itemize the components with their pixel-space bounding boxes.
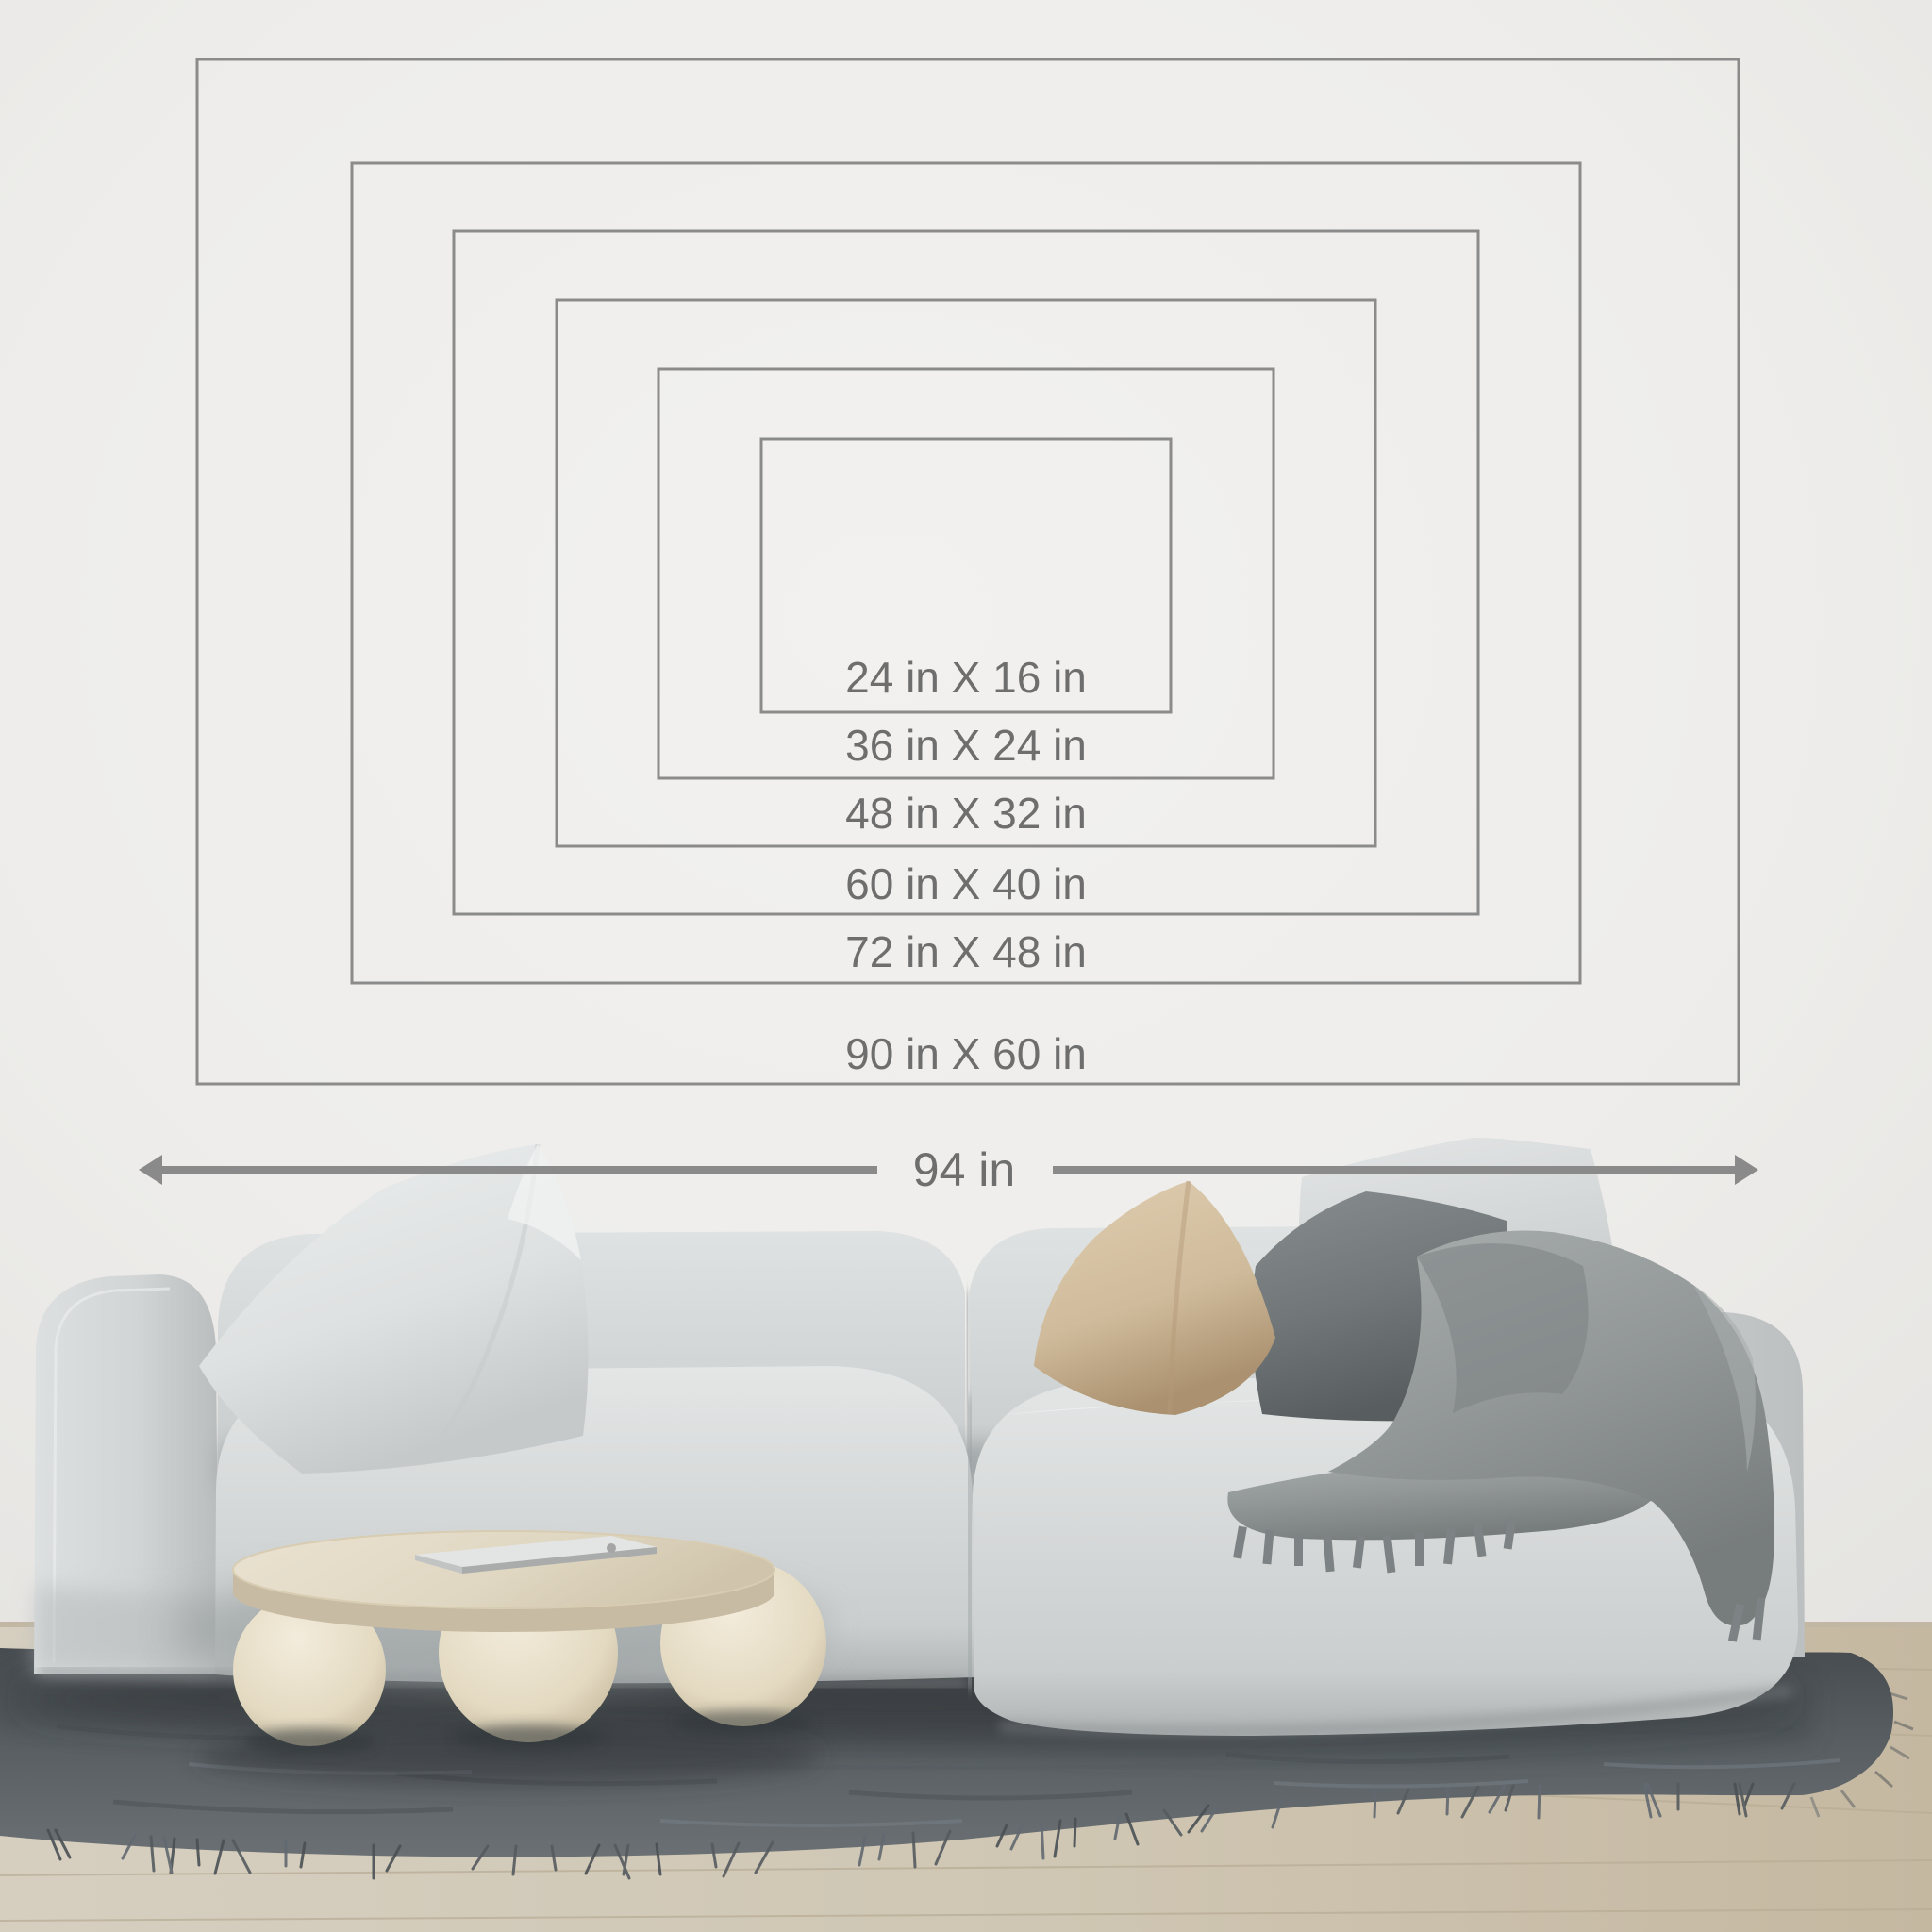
svg-text:24 in X 16 in: 24 in X 16 in <box>845 653 1087 702</box>
svg-text:36 in X 24 in: 36 in X 24 in <box>845 721 1087 770</box>
svg-text:48 in X 32 in: 48 in X 32 in <box>845 789 1087 838</box>
svg-text:90 in X 60 in: 90 in X 60 in <box>845 1029 1087 1078</box>
svg-text:72 in X 48 in: 72 in X 48 in <box>845 927 1087 976</box>
svg-text:94 in: 94 in <box>913 1143 1015 1196</box>
svg-text:60 in X 40 in: 60 in X 40 in <box>845 859 1087 908</box>
